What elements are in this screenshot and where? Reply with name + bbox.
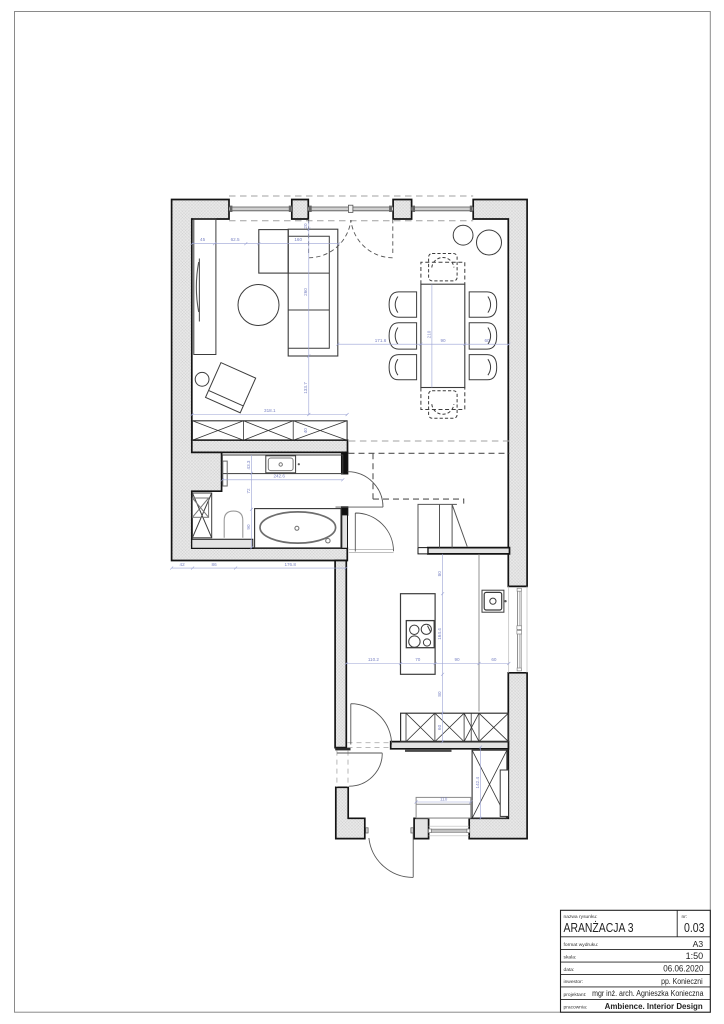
svg-text:80: 80 xyxy=(437,691,442,697)
svg-text:nazwa rysunku:: nazwa rysunku: xyxy=(564,914,598,920)
svg-text:data:: data: xyxy=(564,967,575,973)
svg-text:43.3: 43.3 xyxy=(246,460,251,469)
svg-text:210: 210 xyxy=(426,330,431,338)
svg-text:164.4: 164.4 xyxy=(437,628,442,640)
svg-text:90: 90 xyxy=(440,338,446,343)
svg-text:70: 70 xyxy=(415,657,421,662)
svg-text:Ambience. Interior Design: Ambience. Interior Design xyxy=(605,1002,703,1011)
svg-text:60: 60 xyxy=(491,657,497,662)
svg-text:318.1: 318.1 xyxy=(264,408,276,413)
svg-text:171.6: 171.6 xyxy=(375,338,387,343)
svg-text:176.8: 176.8 xyxy=(284,562,296,567)
svg-text:242.6: 242.6 xyxy=(273,474,285,479)
svg-text:projektant:: projektant: xyxy=(564,992,587,998)
svg-text:160: 160 xyxy=(294,237,302,242)
svg-text:72: 72 xyxy=(246,488,251,494)
svg-text:110.2: 110.2 xyxy=(368,657,380,662)
svg-text:90: 90 xyxy=(454,657,460,662)
svg-text:nr:: nr: xyxy=(682,914,688,920)
svg-text:60: 60 xyxy=(484,338,490,343)
svg-text:90: 90 xyxy=(246,524,251,530)
svg-text:mgr inż. arch. Agnieszka Konie: mgr inż. arch. Agnieszka Konieczna xyxy=(592,989,704,998)
svg-text:skala:: skala: xyxy=(564,954,577,960)
svg-text:inwestor:: inwestor: xyxy=(564,979,584,985)
svg-text:62.5: 62.5 xyxy=(231,237,240,242)
svg-text:06.06.2020: 06.06.2020 xyxy=(663,963,703,973)
svg-text:pracownia:: pracownia: xyxy=(564,1005,588,1011)
svg-text:40: 40 xyxy=(303,428,308,434)
svg-text:42: 42 xyxy=(180,562,186,567)
svg-text:1:50: 1:50 xyxy=(686,951,704,961)
svg-text:110: 110 xyxy=(440,796,448,801)
svg-text:133.7: 133.7 xyxy=(303,382,308,394)
svg-text:142.4: 142.4 xyxy=(475,777,480,789)
svg-text:format wydruku:: format wydruku: xyxy=(564,942,599,948)
svg-text:45: 45 xyxy=(200,237,206,242)
svg-text:20: 20 xyxy=(303,223,308,229)
svg-text:0.03: 0.03 xyxy=(684,921,705,935)
svg-text:ARANŻACJA 3: ARANŻACJA 3 xyxy=(564,921,634,935)
svg-text:pp. Konieczni: pp. Konieczni xyxy=(661,977,703,986)
svg-text:60: 60 xyxy=(437,724,442,730)
svg-text:80: 80 xyxy=(437,571,442,577)
svg-text:260: 260 xyxy=(303,288,308,296)
svg-text:A3: A3 xyxy=(693,939,704,949)
svg-text:86: 86 xyxy=(212,562,218,567)
